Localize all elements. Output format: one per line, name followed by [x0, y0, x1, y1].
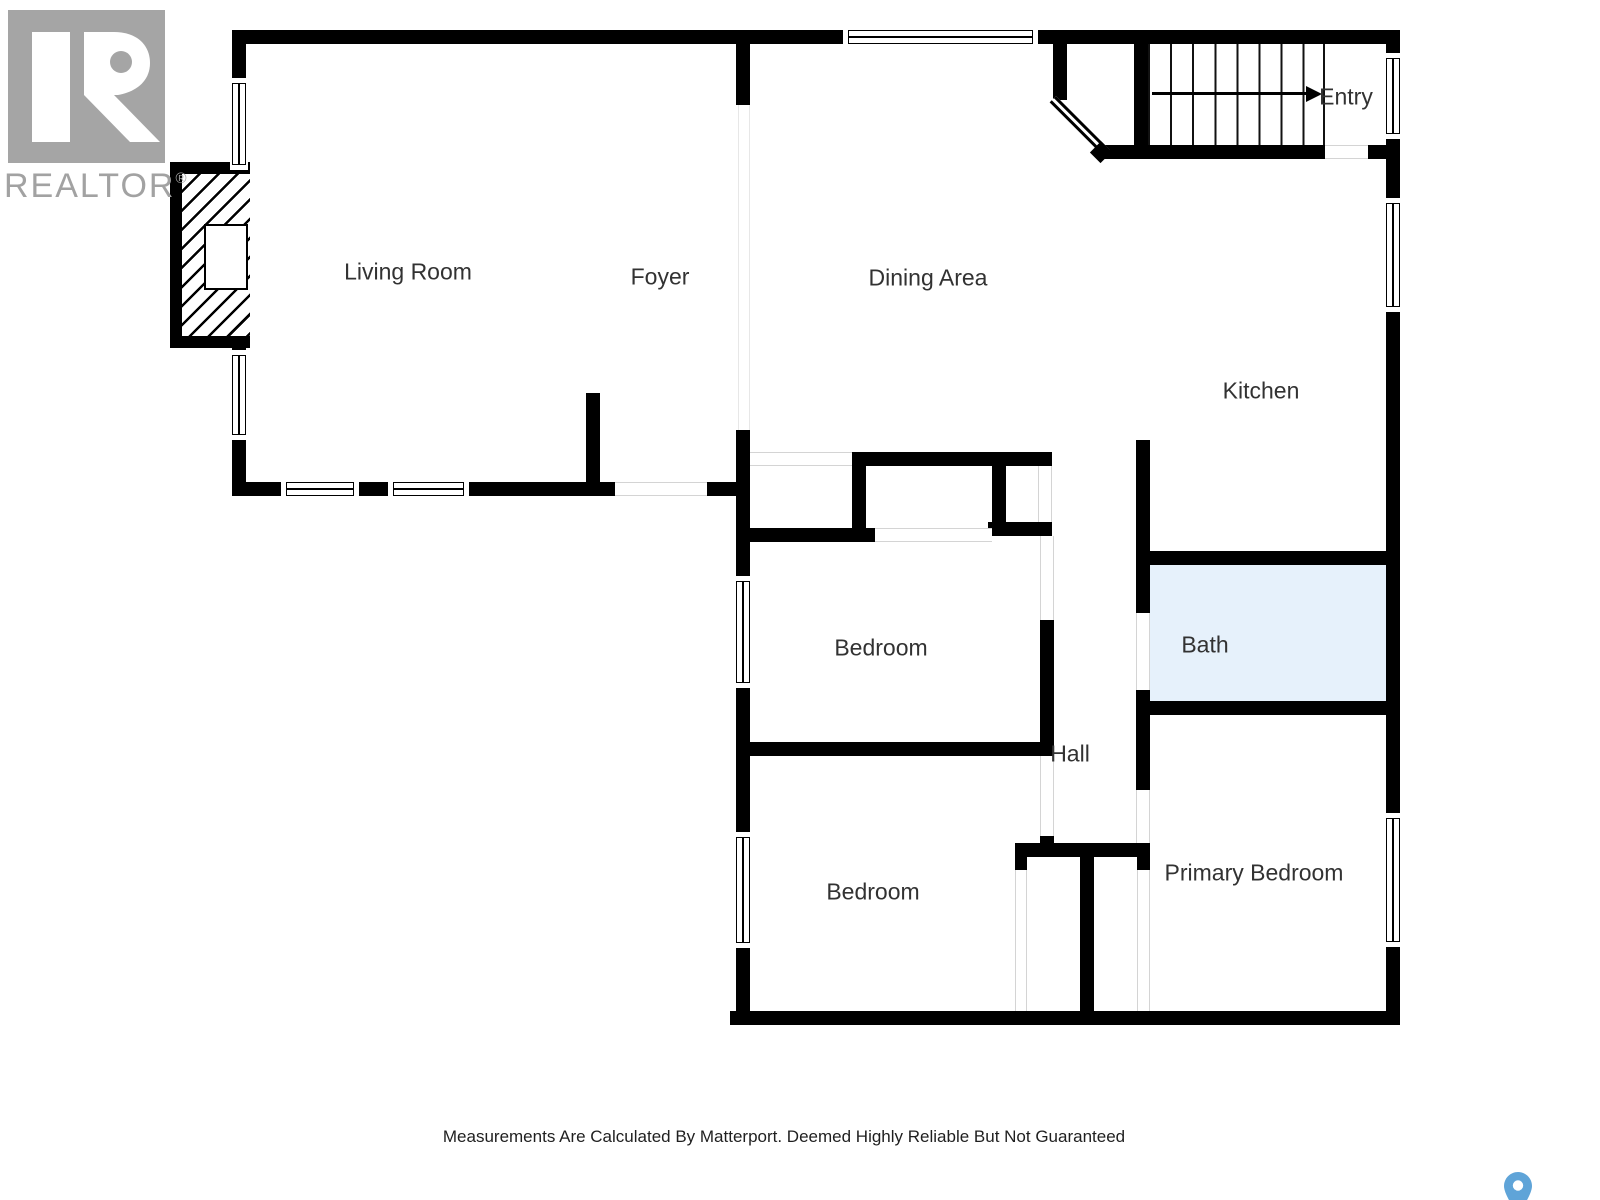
wall-segment [736, 44, 750, 105]
room-label-primary-bedroom: Primary Bedroom [1165, 860, 1344, 887]
room-label-kitchen: Kitchen [1223, 378, 1300, 405]
room-label-bedroom-2: Bedroom [826, 879, 919, 906]
door-opening [1136, 613, 1150, 690]
wall-segment [1136, 551, 1400, 565]
wall-segment [1136, 701, 1400, 715]
fireplace-firebox [204, 224, 248, 290]
room-boundary-line [738, 105, 750, 430]
window-symbol [843, 28, 1038, 46]
wall-segment [1080, 843, 1094, 1011]
room-label-living-room: Living Room [344, 259, 472, 286]
door-opening [1040, 756, 1054, 836]
wall-segment [1040, 620, 1054, 756]
window-symbol [734, 576, 752, 688]
wall-segment [1368, 145, 1386, 159]
window-symbol [230, 350, 248, 440]
room-label-bath: Bath [1181, 632, 1228, 659]
realtor-logo [8, 10, 165, 163]
wall-segment [1136, 690, 1150, 701]
door-opening [1038, 466, 1052, 522]
window-symbol [1384, 53, 1402, 139]
wall-segment [232, 30, 1400, 44]
door-opening [1137, 870, 1150, 1011]
wall-segment [1040, 836, 1054, 850]
wall-segment [992, 452, 1006, 536]
floor-plan: Living Room Foyer Dining Area Entry Kitc… [0, 0, 1600, 1200]
door-opening [1015, 870, 1027, 1011]
wall-segment [1136, 715, 1150, 790]
realtor-wordmark-text: REALTOR [4, 167, 175, 205]
window-symbol [1384, 813, 1402, 947]
door-opening [875, 528, 992, 542]
room-label-hall: Hall [1050, 741, 1090, 768]
door-opening [1040, 536, 1054, 620]
room-label-foyer: Foyer [631, 264, 690, 291]
door-opening [1136, 790, 1150, 843]
wall-segment [1015, 843, 1027, 870]
wall-segment [852, 452, 866, 542]
door-opening [1325, 145, 1368, 159]
wall-segment [1100, 145, 1325, 159]
measurement-disclaimer: Measurements Are Calculated By Matterpor… [443, 1127, 1125, 1147]
wall-segment [750, 742, 1054, 756]
wall-segment [1134, 44, 1148, 145]
window-symbol [388, 480, 469, 498]
window-symbol [230, 78, 248, 170]
wall-segment [730, 1011, 1400, 1025]
wall-segment [1136, 440, 1150, 613]
wall-segment [586, 393, 600, 496]
room-label-entry: Entry [1319, 84, 1373, 111]
window-symbol [734, 832, 752, 948]
wall-segment [852, 452, 1052, 466]
location-pin-icon[interactable] [1502, 1170, 1534, 1200]
realtor-wordmark: REALTOR® [4, 167, 187, 206]
door-opening [750, 452, 852, 466]
wall-segment [1053, 44, 1067, 100]
wall-segment [1137, 843, 1150, 870]
registered-trademark-icon: ® [175, 170, 186, 187]
window-symbol [281, 480, 359, 498]
room-label-bedroom-1: Bedroom [834, 635, 927, 662]
stairs-direction-arrow [1152, 92, 1310, 95]
door-opening [615, 482, 707, 496]
window-symbol [1384, 198, 1402, 312]
room-label-dining-area: Dining Area [869, 265, 988, 292]
